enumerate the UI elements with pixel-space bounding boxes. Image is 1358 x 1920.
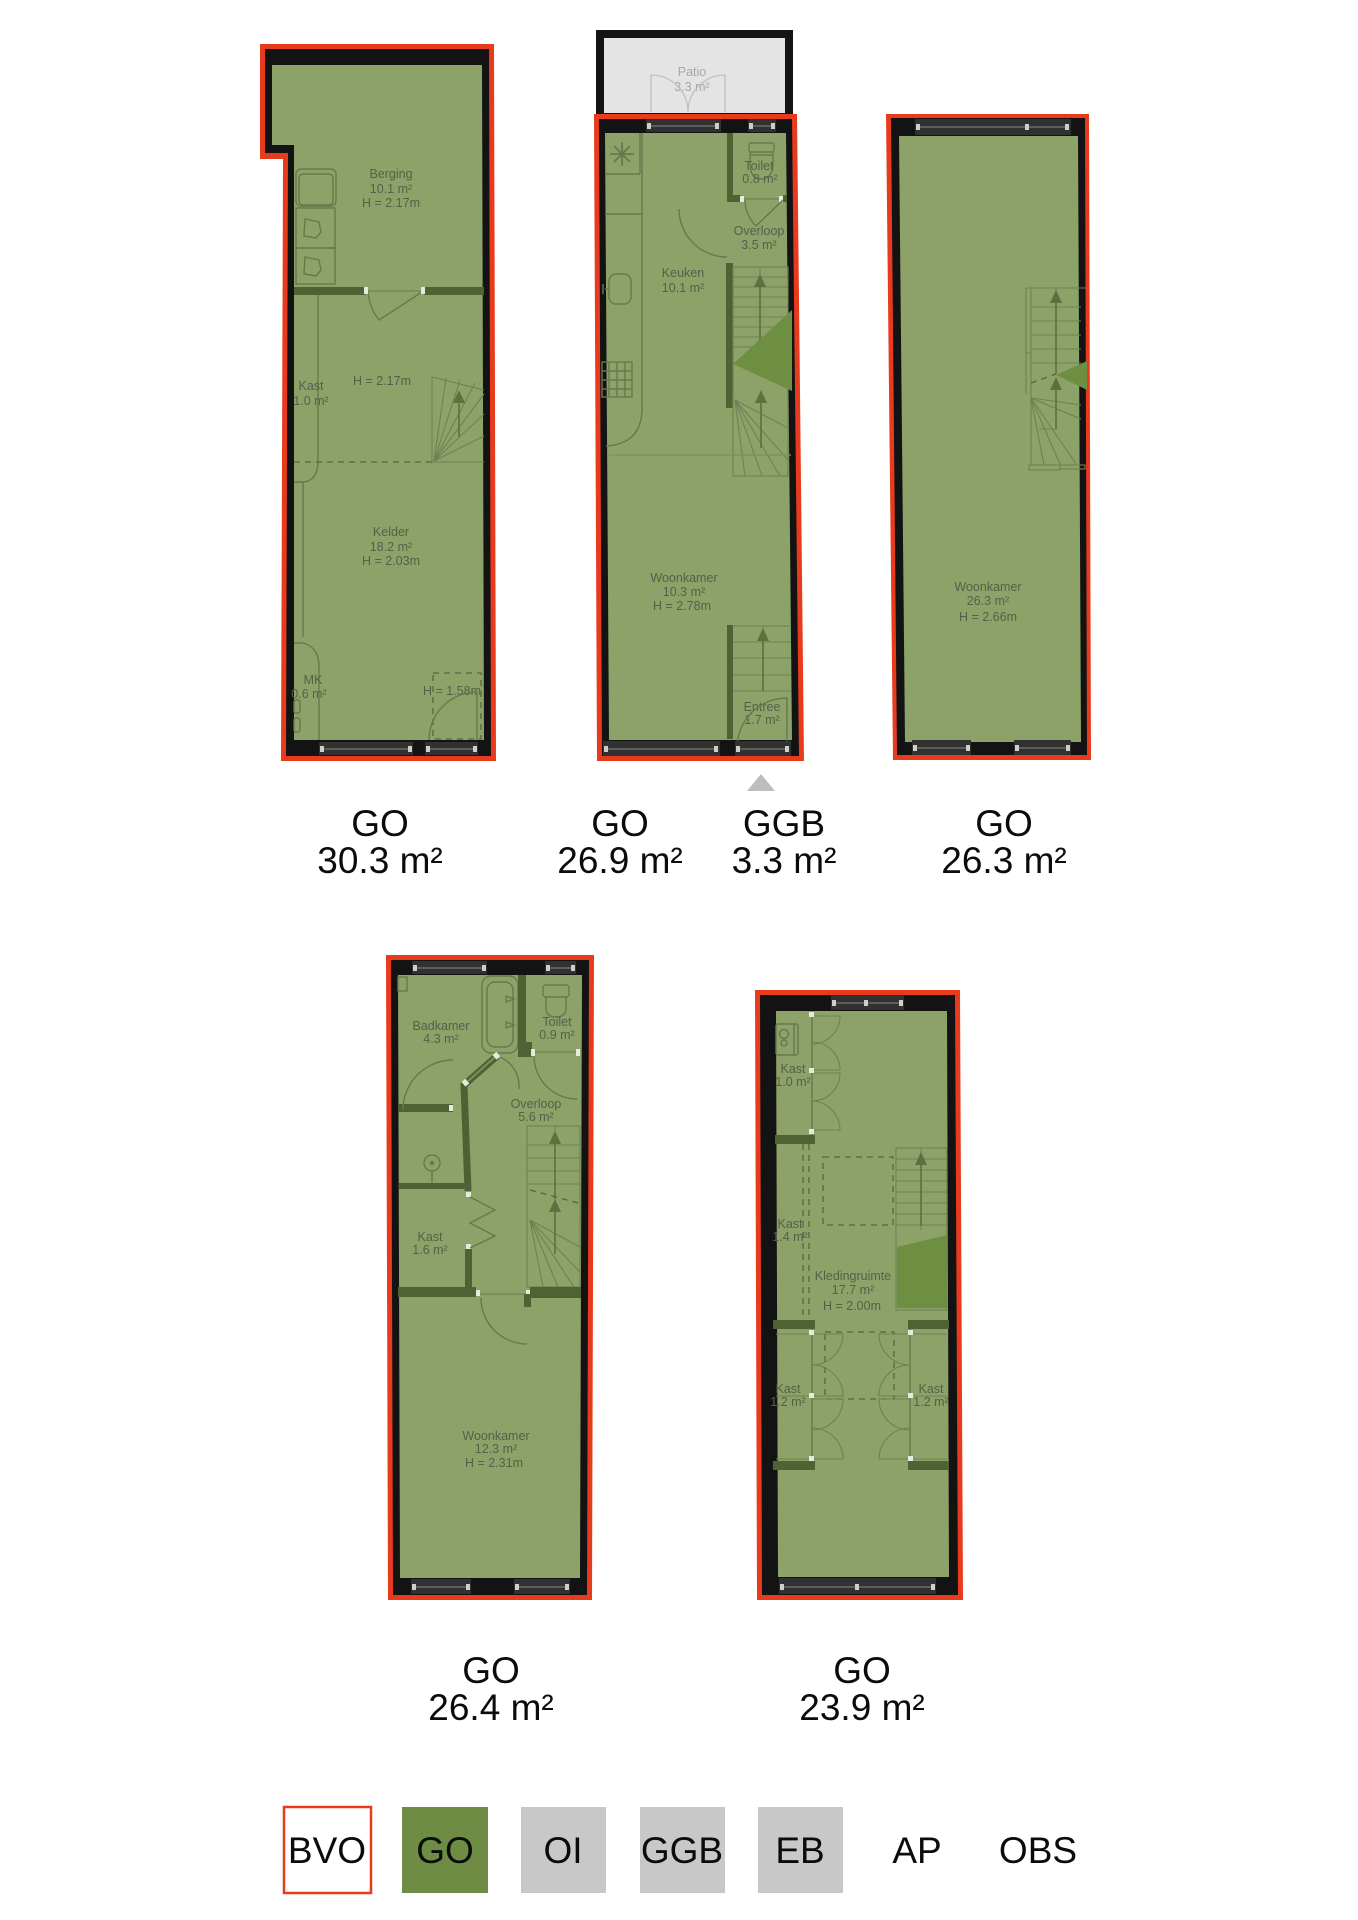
svg-text:23.9 m²: 23.9 m² bbox=[799, 1687, 924, 1728]
svg-text:1.2 m²: 1.2 m² bbox=[770, 1395, 805, 1409]
svg-text:Toilet: Toilet bbox=[542, 1015, 572, 1029]
svg-text:H = 2.17m: H = 2.17m bbox=[353, 374, 411, 388]
svg-text:AP: AP bbox=[892, 1830, 941, 1871]
svg-text:Kast: Kast bbox=[777, 1217, 803, 1231]
svg-text:H = 2.17m: H = 2.17m bbox=[362, 196, 420, 210]
svg-text:GO: GO bbox=[351, 803, 409, 844]
svg-text:Badkamer: Badkamer bbox=[413, 1019, 470, 1033]
svg-text:Kelder: Kelder bbox=[373, 525, 409, 539]
svg-text:Woonkamer: Woonkamer bbox=[650, 571, 717, 585]
svg-text:1.2 m²: 1.2 m² bbox=[913, 1395, 948, 1409]
svg-text:17.7 m²: 17.7 m² bbox=[832, 1283, 874, 1297]
svg-text:5.6 m²: 5.6 m² bbox=[518, 1110, 553, 1124]
svg-text:3.5 m²: 3.5 m² bbox=[741, 238, 776, 252]
svg-text:GGB: GGB bbox=[743, 803, 825, 844]
svg-text:GO: GO bbox=[833, 1650, 891, 1691]
svg-text:10.1 m²: 10.1 m² bbox=[370, 182, 412, 196]
svg-text:Kast: Kast bbox=[417, 1230, 443, 1244]
svg-text:H = 2.66m: H = 2.66m bbox=[959, 610, 1017, 624]
svg-text:26.4 m²: 26.4 m² bbox=[428, 1687, 553, 1728]
svg-text:1.6 m²: 1.6 m² bbox=[412, 1243, 447, 1257]
svg-text:H = 2.00m: H = 2.00m bbox=[823, 1299, 881, 1313]
svg-text:10.3 m²: 10.3 m² bbox=[663, 585, 705, 599]
svg-text:EB: EB bbox=[775, 1830, 824, 1871]
svg-text:1.0 m²: 1.0 m² bbox=[775, 1075, 810, 1089]
svg-text:Entree: Entree bbox=[744, 700, 781, 714]
svg-text:0.6 m²: 0.6 m² bbox=[291, 687, 326, 701]
svg-text:H = 2.03m: H = 2.03m bbox=[362, 554, 420, 568]
svg-text:Overloop: Overloop bbox=[734, 224, 785, 238]
svg-text:Keuken: Keuken bbox=[662, 266, 704, 280]
svg-text:26.3 m²: 26.3 m² bbox=[967, 594, 1009, 608]
svg-text:3.3 m²: 3.3 m² bbox=[732, 840, 837, 881]
svg-text:1.4 m²: 1.4 m² bbox=[772, 1230, 807, 1244]
svg-text:GO: GO bbox=[416, 1830, 474, 1871]
svg-text:0.9 m²: 0.9 m² bbox=[539, 1028, 574, 1042]
svg-text:1.0 m²: 1.0 m² bbox=[293, 394, 328, 408]
svg-text:GGB: GGB bbox=[641, 1830, 723, 1871]
svg-text:Kast: Kast bbox=[775, 1382, 801, 1396]
svg-text:H = 2.31m: H = 2.31m bbox=[465, 1456, 523, 1470]
svg-text:12.3 m²: 12.3 m² bbox=[475, 1442, 517, 1456]
svg-text:GO: GO bbox=[462, 1650, 520, 1691]
svg-text:OI: OI bbox=[543, 1830, 582, 1871]
svg-text:GO: GO bbox=[975, 803, 1033, 844]
svg-text:H = 2.78m: H = 2.78m bbox=[653, 599, 711, 613]
svg-text:Toilet: Toilet bbox=[744, 159, 774, 173]
svg-text:26.3 m²: 26.3 m² bbox=[941, 840, 1066, 881]
svg-text:0.8 m²: 0.8 m² bbox=[742, 172, 777, 186]
svg-text:MK: MK bbox=[304, 673, 323, 687]
svg-text:18.2 m²: 18.2 m² bbox=[370, 540, 412, 554]
svg-text:Kast: Kast bbox=[918, 1382, 944, 1396]
svg-text:Overloop: Overloop bbox=[511, 1097, 562, 1111]
svg-text:BVO: BVO bbox=[288, 1830, 366, 1871]
svg-text:Kast: Kast bbox=[298, 379, 324, 393]
svg-text:Woonkamer: Woonkamer bbox=[954, 580, 1021, 594]
svg-text:GO: GO bbox=[591, 803, 649, 844]
svg-text:Woonkamer: Woonkamer bbox=[462, 1429, 529, 1443]
svg-text:26.9 m²: 26.9 m² bbox=[557, 840, 682, 881]
svg-text:10.1 m²: 10.1 m² bbox=[662, 281, 704, 295]
svg-text:Kast: Kast bbox=[780, 1062, 806, 1076]
svg-text:Patio: Patio bbox=[678, 65, 707, 79]
svg-text:OBS: OBS bbox=[999, 1830, 1077, 1871]
svg-text:Kledingruimte: Kledingruimte bbox=[815, 1269, 891, 1283]
svg-text:H = 1.58m: H = 1.58m bbox=[423, 684, 481, 698]
svg-text:4.3 m²: 4.3 m² bbox=[423, 1032, 458, 1046]
svg-text:30.3 m²: 30.3 m² bbox=[317, 840, 442, 881]
svg-text:Berging: Berging bbox=[369, 167, 412, 181]
svg-text:3.3 m²: 3.3 m² bbox=[674, 80, 709, 94]
